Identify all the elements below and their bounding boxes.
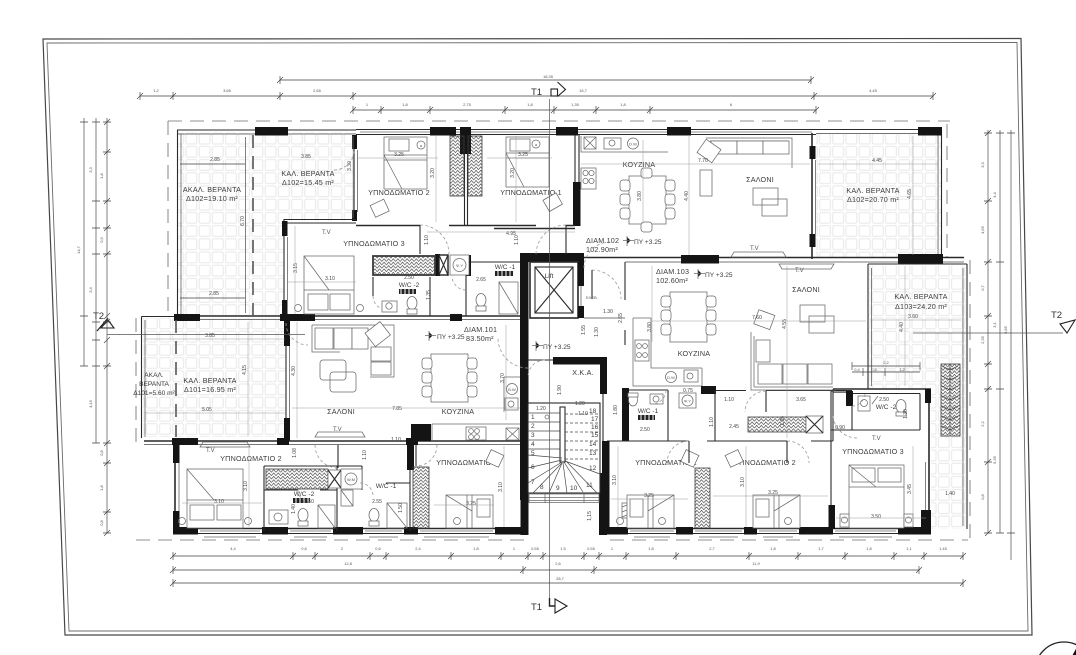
svg-text:ΚΑΛ. ΒΕΡΑΝΤΑ: ΚΑΛ. ΒΕΡΑΝΤΑ bbox=[846, 186, 899, 195]
svg-text:2.85: 2.85 bbox=[210, 157, 220, 163]
svg-text:0,8: 0,8 bbox=[99, 449, 104, 455]
svg-text:3.25: 3.25 bbox=[768, 490, 778, 496]
svg-text:1.30: 1.30 bbox=[594, 327, 600, 337]
svg-text:0.75: 0.75 bbox=[683, 388, 693, 394]
svg-text:14: 14 bbox=[589, 441, 597, 448]
svg-text:2.85: 2.85 bbox=[209, 291, 219, 297]
svg-text:Δ102=20.70 m²: Δ102=20.70 m² bbox=[847, 195, 899, 204]
svg-text:1,8: 1,8 bbox=[620, 102, 626, 107]
svg-text:1.10: 1.10 bbox=[362, 450, 368, 460]
svg-text:3.10: 3.10 bbox=[243, 481, 249, 491]
svg-text:ΣΑΛΟΝΙ: ΣΑΛΟΝΙ bbox=[746, 175, 774, 184]
svg-text:9: 9 bbox=[556, 485, 560, 492]
svg-text:T2: T2 bbox=[93, 311, 104, 322]
svg-text:3.45: 3.45 bbox=[907, 484, 913, 494]
svg-text:3.60: 3.60 bbox=[908, 314, 918, 320]
svg-text:18: 18 bbox=[589, 408, 597, 415]
svg-text:3.30: 3.30 bbox=[347, 161, 353, 171]
svg-text:3,4: 3,4 bbox=[88, 286, 93, 292]
svg-text:5.05: 5.05 bbox=[202, 407, 212, 413]
svg-text:1.08: 1.08 bbox=[292, 448, 298, 458]
svg-text:102.60m²: 102.60m² bbox=[656, 276, 688, 285]
svg-text:1,7: 1,7 bbox=[818, 546, 824, 551]
svg-text:11,9: 11,9 bbox=[752, 561, 760, 566]
svg-text:2,35: 2,35 bbox=[980, 335, 985, 344]
svg-text:3.50: 3.50 bbox=[871, 514, 881, 520]
svg-text:4.40: 4.40 bbox=[899, 322, 905, 332]
svg-text:ΚΟΥΖΙΝΑ: ΚΟΥΖΙΝΑ bbox=[442, 407, 475, 416]
svg-text:ΣΑΛΟΝΙ: ΣΑΛΟΝΙ bbox=[792, 285, 820, 294]
svg-text:1.30: 1.30 bbox=[903, 409, 909, 419]
svg-text:1,15: 1,15 bbox=[587, 511, 593, 521]
svg-text:18,35: 18,35 bbox=[543, 74, 554, 79]
svg-text:W/C -1: W/C -1 bbox=[376, 483, 397, 490]
svg-text:Δ101=5.60 m²: Δ101=5.60 m² bbox=[133, 390, 175, 397]
svg-text:W.M: W.M bbox=[347, 477, 355, 482]
svg-text:ΚΑΛ. ΒΕΡΑΝΤΑ: ΚΑΛ. ΒΕΡΑΝΤΑ bbox=[281, 169, 334, 178]
svg-text:B.W: B.W bbox=[508, 387, 516, 392]
svg-text:6.70: 6.70 bbox=[240, 216, 246, 226]
svg-text:1,2: 1,2 bbox=[153, 88, 159, 93]
svg-text:4,4: 4,4 bbox=[992, 191, 997, 197]
svg-text:ΚΟΥΖΙΝΑ: ΚΟΥΖΙΝΑ bbox=[623, 160, 656, 169]
svg-text:9,85: 9,85 bbox=[1003, 325, 1008, 334]
svg-text:1.10: 1.10 bbox=[391, 437, 401, 443]
svg-text:6: 6 bbox=[531, 464, 535, 471]
svg-text:W/C -2: W/C -2 bbox=[399, 282, 420, 289]
svg-text:4,65: 4,65 bbox=[980, 225, 985, 234]
svg-text:T2: T2 bbox=[1051, 310, 1062, 321]
svg-text:17: 17 bbox=[591, 416, 599, 423]
svg-text:3.85: 3.85 bbox=[205, 333, 215, 339]
svg-text:3.25: 3.25 bbox=[644, 493, 654, 499]
svg-text:ΥΠΝΟΔΩΜΑΤΙΟ 2: ΥΠΝΟΔΩΜΑΤΙΟ 2 bbox=[220, 454, 282, 463]
svg-text:1,5: 1,5 bbox=[560, 546, 566, 551]
svg-text:10: 10 bbox=[570, 485, 578, 492]
svg-text:28,7: 28,7 bbox=[556, 576, 565, 581]
svg-text:4,45: 4,45 bbox=[869, 88, 878, 93]
svg-text:Ψ.Υ: Ψ.Υ bbox=[456, 263, 463, 268]
svg-text:16,7: 16,7 bbox=[579, 88, 588, 93]
svg-text:T1: T1 bbox=[531, 602, 542, 613]
svg-text:Lift: Lift bbox=[545, 273, 554, 280]
svg-text:3.80: 3.80 bbox=[637, 191, 643, 201]
svg-text:1.10: 1.10 bbox=[514, 235, 520, 245]
svg-text:T.V: T.V bbox=[206, 448, 215, 454]
svg-text:2: 2 bbox=[531, 423, 535, 430]
svg-text:7: 7 bbox=[531, 479, 535, 486]
svg-text:ΠΥ +3.25: ΠΥ +3.25 bbox=[634, 239, 662, 246]
svg-text:1,45: 1,45 bbox=[939, 546, 948, 551]
svg-text:2,75: 2,75 bbox=[463, 102, 472, 107]
svg-text:7.70: 7.70 bbox=[698, 158, 708, 164]
svg-text:3.10: 3.10 bbox=[612, 475, 618, 485]
svg-text:2.50: 2.50 bbox=[304, 499, 314, 505]
svg-text:0,6: 0,6 bbox=[375, 546, 381, 551]
svg-text:3: 3 bbox=[531, 432, 535, 439]
svg-text:1.40: 1.40 bbox=[291, 504, 297, 514]
svg-text:1.50: 1.50 bbox=[398, 503, 404, 513]
svg-text:8: 8 bbox=[540, 484, 544, 491]
svg-text:Δ102=15.45 m²: Δ102=15.45 m² bbox=[282, 178, 334, 187]
svg-text:1,8: 1,8 bbox=[402, 102, 408, 107]
svg-text:1.30: 1.30 bbox=[603, 309, 613, 315]
svg-text:1,8: 1,8 bbox=[866, 546, 872, 551]
svg-text:0,8: 0,8 bbox=[980, 493, 985, 499]
svg-text:2.50: 2.50 bbox=[404, 275, 414, 281]
svg-text:15: 15 bbox=[591, 432, 599, 439]
svg-text:1.10: 1.10 bbox=[424, 235, 430, 245]
svg-text:ΠΥ +3.25: ΠΥ +3.25 bbox=[437, 334, 465, 341]
svg-text:ΚΑΛ. ΒΕΡΑΝΤΑ: ΚΑΛ. ΒΕΡΑΝΤΑ bbox=[183, 376, 236, 385]
svg-text:T.V: T.V bbox=[750, 246, 759, 252]
svg-text:ΥΠΝΟΔΩΜΑΤΙΟ 3: ΥΠΝΟΔΩΜΑΤΙΟ 3 bbox=[343, 239, 405, 248]
svg-text:1,8: 1,8 bbox=[99, 172, 104, 178]
svg-text:W/C -1: W/C -1 bbox=[638, 408, 659, 415]
svg-text:1,1: 1,1 bbox=[906, 546, 912, 551]
svg-text:4.65: 4.65 bbox=[907, 189, 913, 199]
svg-text:D.W: D.W bbox=[629, 142, 637, 147]
svg-text:16: 16 bbox=[591, 424, 599, 431]
svg-text:1,8: 1,8 bbox=[648, 546, 654, 551]
svg-text:0.90: 0.90 bbox=[835, 425, 845, 431]
svg-text:T.V: T.V bbox=[322, 230, 331, 236]
svg-text:1.35: 1.35 bbox=[426, 290, 432, 300]
svg-text:1.90: 1.90 bbox=[557, 385, 563, 395]
svg-text:0,55: 0,55 bbox=[531, 546, 540, 551]
svg-text:1.10: 1.10 bbox=[709, 417, 715, 427]
svg-text:11: 11 bbox=[586, 482, 593, 489]
svg-text:W/C -2: W/C -2 bbox=[876, 404, 897, 411]
svg-text:0,4: 0,4 bbox=[854, 367, 860, 372]
svg-text:3.15: 3.15 bbox=[293, 263, 299, 273]
svg-text:Ψ.Υ: Ψ.Υ bbox=[684, 399, 691, 404]
svg-text:14,7: 14,7 bbox=[76, 245, 81, 254]
svg-text:1.10: 1.10 bbox=[724, 397, 734, 403]
svg-text:4.15: 4.15 bbox=[242, 365, 248, 375]
svg-text:ΑΚΑΛ. ΒΕΡΑΝΤΑ: ΑΚΑΛ. ΒΕΡΑΝΤΑ bbox=[183, 185, 241, 194]
svg-text:2.50: 2.50 bbox=[879, 397, 889, 403]
svg-text:13: 13 bbox=[589, 450, 597, 457]
svg-text:1: 1 bbox=[531, 414, 535, 421]
svg-text:2,4: 2,4 bbox=[415, 546, 421, 551]
svg-text:3.10: 3.10 bbox=[325, 276, 335, 282]
svg-text:3.10: 3.10 bbox=[740, 477, 746, 487]
svg-text:2.50: 2.50 bbox=[640, 427, 650, 433]
svg-text:4.45: 4.45 bbox=[872, 158, 882, 164]
svg-text:4.30: 4.30 bbox=[291, 366, 297, 376]
svg-text:3.70: 3.70 bbox=[500, 373, 506, 383]
svg-text:5,35: 5,35 bbox=[992, 455, 997, 464]
svg-text:3,3: 3,3 bbox=[88, 166, 93, 172]
svg-text:0,8: 0,8 bbox=[99, 519, 104, 525]
svg-text:ΚΟΥΖΙΝΑ: ΚΟΥΖΙΝΑ bbox=[678, 349, 711, 358]
svg-text:ΠΥ +3.25: ΠΥ +3.25 bbox=[705, 272, 733, 279]
svg-text:2,2: 2,2 bbox=[883, 360, 889, 365]
svg-text:1,8: 1,8 bbox=[473, 546, 479, 551]
svg-text:102.90m²: 102.90m² bbox=[586, 245, 618, 254]
svg-text:ΔΙΑΜ.102: ΔΙΑΜ.102 bbox=[586, 236, 619, 245]
svg-text:D.W: D.W bbox=[667, 375, 675, 380]
svg-text:ΒΕΡΑΝΤΑ: ΒΕΡΑΝΤΑ bbox=[139, 381, 169, 388]
svg-text:7.85: 7.85 bbox=[392, 406, 402, 412]
svg-text:3.65: 3.65 bbox=[796, 397, 806, 403]
svg-text:Χ.Κ.Α.: Χ.Κ.Α. bbox=[572, 368, 594, 377]
svg-text:2,2: 2,2 bbox=[980, 420, 985, 426]
svg-text:1.20: 1.20 bbox=[575, 401, 585, 407]
svg-text:3,65: 3,65 bbox=[223, 88, 232, 93]
svg-text:0,8: 0,8 bbox=[301, 546, 307, 551]
svg-text:T.V: T.V bbox=[872, 436, 881, 442]
svg-text:ΔΙΑΜ.103: ΔΙΑΜ.103 bbox=[656, 267, 689, 276]
svg-text:Δ103=24.20 m²: Δ103=24.20 m² bbox=[895, 302, 947, 311]
svg-text:12,8: 12,8 bbox=[344, 561, 353, 566]
svg-text:ΣΑΛΟΝΙ: ΣΑΛΟΝΙ bbox=[327, 407, 355, 416]
svg-text:3.10: 3.10 bbox=[498, 482, 504, 492]
svg-text:2,7: 2,7 bbox=[709, 546, 715, 551]
svg-text:1,35: 1,35 bbox=[571, 102, 580, 107]
svg-text:5: 5 bbox=[531, 450, 535, 457]
svg-text:1.55: 1.55 bbox=[581, 325, 587, 335]
svg-text:3.25: 3.25 bbox=[394, 152, 404, 158]
svg-text:3.25: 3.25 bbox=[518, 152, 528, 158]
svg-text:3,1: 3,1 bbox=[992, 321, 997, 327]
svg-text:1,8: 1,8 bbox=[99, 484, 104, 490]
svg-text:1.05: 1.05 bbox=[780, 416, 786, 426]
svg-text:4,4: 4,4 bbox=[230, 546, 236, 551]
svg-text:12: 12 bbox=[589, 465, 597, 472]
svg-text:1.80: 1.80 bbox=[613, 405, 619, 415]
svg-text:1,8: 1,8 bbox=[527, 102, 533, 107]
svg-text:3.85: 3.85 bbox=[301, 154, 311, 160]
svg-text:0,6: 0,6 bbox=[871, 367, 877, 372]
svg-text:2.45: 2.45 bbox=[729, 424, 739, 430]
svg-text:4: 4 bbox=[531, 441, 535, 448]
svg-text:3.10: 3.10 bbox=[214, 499, 224, 505]
svg-text:ΠΥ +3.25: ΠΥ +3.25 bbox=[543, 344, 571, 351]
svg-text:3.20: 3.20 bbox=[430, 168, 436, 178]
svg-text:W/C -1: W/C -1 bbox=[495, 264, 516, 271]
svg-text:83.50m²: 83.50m² bbox=[466, 334, 494, 343]
svg-text:1,8: 1,8 bbox=[770, 546, 776, 551]
svg-text:Δ102=19.10 m²: Δ102=19.10 m² bbox=[186, 194, 238, 203]
svg-text:3.25: 3.25 bbox=[466, 501, 476, 507]
svg-text:ΚΑΛ. ΒΕΡΑΝΤΑ: ΚΑΛ. ΒΕΡΑΝΤΑ bbox=[894, 292, 947, 301]
svg-text:2.65: 2.65 bbox=[618, 313, 624, 323]
svg-text:1.40: 1.40 bbox=[945, 491, 955, 497]
svg-text:1.10: 1.10 bbox=[578, 411, 588, 417]
svg-text:3.20: 3.20 bbox=[510, 168, 516, 178]
svg-text:2.65: 2.65 bbox=[476, 277, 486, 283]
svg-text:2,65: 2,65 bbox=[313, 88, 322, 93]
svg-text:0,7: 0,7 bbox=[980, 284, 985, 290]
svg-text:1.20: 1.20 bbox=[536, 406, 546, 412]
svg-text:0,55: 0,55 bbox=[587, 546, 596, 551]
svg-text:ΥΠΝΟΔΩΜΑΤΙΟ 3: ΥΠΝΟΔΩΜΑΤΙΟ 3 bbox=[842, 447, 904, 456]
svg-text:0,9: 0,9 bbox=[99, 236, 104, 242]
svg-text:3,3: 3,3 bbox=[980, 161, 985, 167]
svg-text:2,6: 2,6 bbox=[555, 561, 561, 566]
svg-text:W/C -2: W/C -2 bbox=[294, 491, 315, 498]
svg-text:4,15: 4,15 bbox=[88, 399, 93, 408]
svg-text:Δ101=16.95 m²: Δ101=16.95 m² bbox=[184, 385, 236, 394]
svg-text:T1: T1 bbox=[531, 87, 542, 98]
svg-text:7.60: 7.60 bbox=[752, 315, 762, 321]
svg-text:1,2: 1,2 bbox=[899, 367, 905, 372]
svg-text:2.55: 2.55 bbox=[372, 499, 382, 505]
svg-text:ΔΙΑΜ.101: ΔΙΑΜ.101 bbox=[464, 325, 497, 334]
svg-text:ΑΚΑΛ.: ΑΚΑΛ. bbox=[144, 372, 164, 379]
